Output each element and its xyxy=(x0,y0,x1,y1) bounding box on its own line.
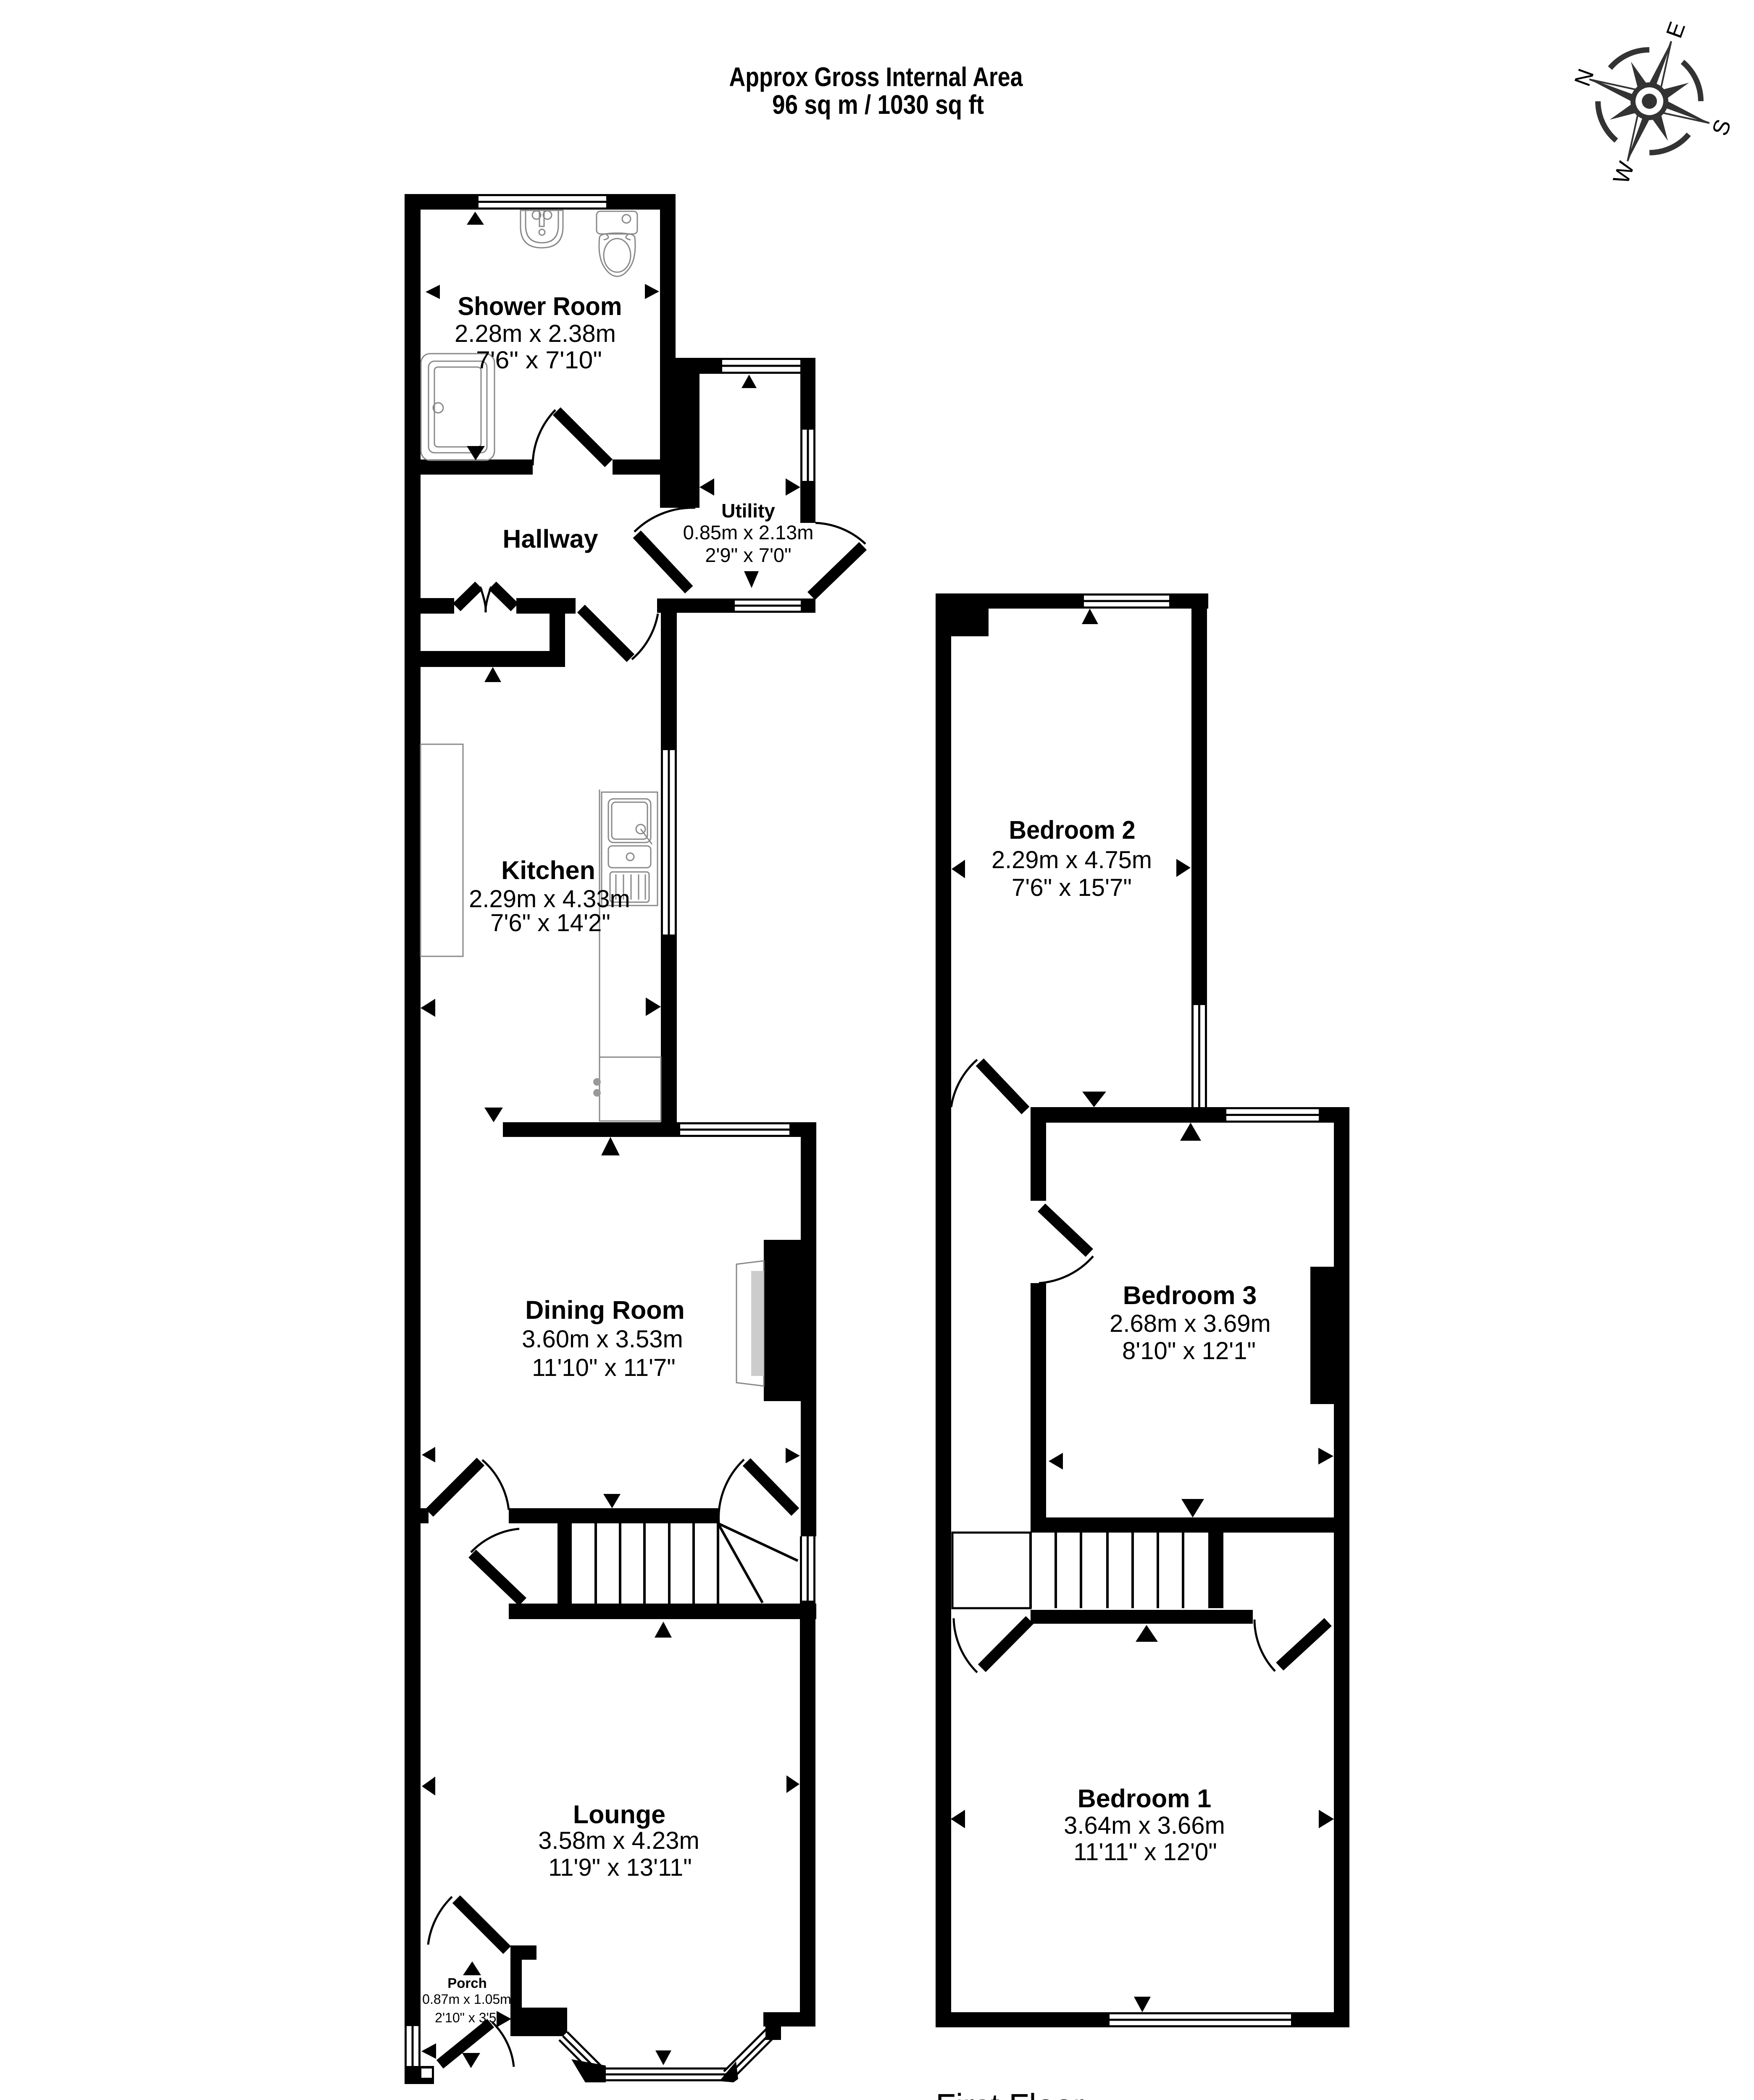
svg-text:First Floor: First Floor xyxy=(936,2087,1084,2100)
svg-text:8'10" x 12'1": 8'10" x 12'1" xyxy=(1122,1337,1256,1365)
svg-text:Kitchen: Kitchen xyxy=(501,856,595,885)
svg-text:0.85m x 2.13m: 0.85m x 2.13m xyxy=(683,521,814,543)
svg-text:Dining Room: Dining Room xyxy=(525,1296,685,1324)
svg-text:96 sq m / 1030 sq ft: 96 sq m / 1030 sq ft xyxy=(772,89,984,120)
svg-text:Approx Gross Internal Area: Approx Gross Internal Area xyxy=(729,62,1023,92)
svg-text:7'6" x 7'10": 7'6" x 7'10" xyxy=(476,346,602,374)
svg-text:Hallway: Hallway xyxy=(502,525,598,553)
svg-text:11'9" x 13'11": 11'9" x 13'11" xyxy=(548,1854,692,1881)
svg-text:11'11" x 12'0": 11'11" x 12'0" xyxy=(1073,1838,1217,1866)
svg-text:7'6" x 15'7": 7'6" x 15'7" xyxy=(1012,874,1132,901)
svg-text:2.29m x 4.33m: 2.29m x 4.33m xyxy=(469,885,630,913)
svg-text:11'10" x 11'7": 11'10" x 11'7" xyxy=(532,1354,676,1381)
svg-text:Utility: Utility xyxy=(721,500,775,522)
svg-text:Bedroom 2: Bedroom 2 xyxy=(1009,816,1136,844)
svg-text:2'9" x 7'0": 2'9" x 7'0" xyxy=(705,544,792,566)
svg-text:Bedroom 1: Bedroom 1 xyxy=(1078,1784,1212,1813)
svg-text:0.87m x 1.05m: 0.87m x 1.05m xyxy=(422,1992,511,2007)
svg-text:3.58m x 4.23m: 3.58m x 4.23m xyxy=(538,1827,699,1854)
svg-text:Bedroom 3: Bedroom 3 xyxy=(1123,1281,1257,1310)
svg-text:2.68m x 3.69m: 2.68m x 3.69m xyxy=(1110,1310,1271,1337)
svg-text:2.28m x 2.38m: 2.28m x 2.38m xyxy=(455,320,616,347)
svg-text:7'6" x 14'2": 7'6" x 14'2" xyxy=(490,909,610,937)
svg-text:3.64m x 3.66m: 3.64m x 3.66m xyxy=(1064,1812,1225,1839)
svg-text:2'10" x 3'5": 2'10" x 3'5" xyxy=(435,2010,501,2025)
svg-text:2.29m x 4.75m: 2.29m x 4.75m xyxy=(991,846,1152,874)
svg-text:Porch: Porch xyxy=(447,1975,487,1991)
svg-text:Shower Room: Shower Room xyxy=(458,292,622,320)
svg-text:3.60m x 3.53m: 3.60m x 3.53m xyxy=(522,1326,683,1353)
svg-text:Lounge: Lounge xyxy=(573,1800,665,1829)
